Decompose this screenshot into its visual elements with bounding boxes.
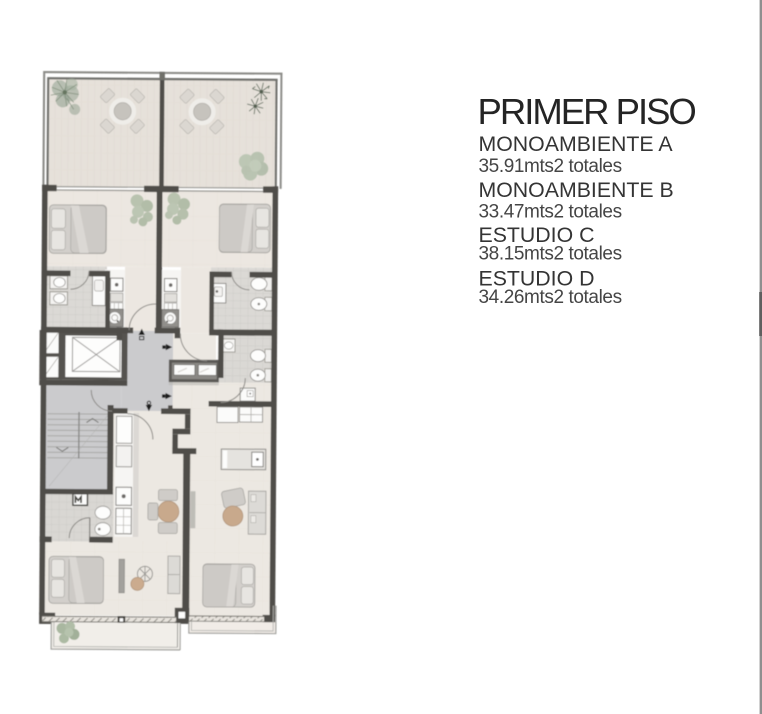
svg-text:38.15mts2 totales: 38.15mts2 totales: [479, 243, 622, 264]
svg-text:MONOAMBIENTE A: MONOAMBIENTE A: [479, 132, 674, 156]
svg-text:34.26mts2 totales: 34.26mts2 totales: [479, 287, 622, 308]
svg-text:33.47mts2 totales: 33.47mts2 totales: [479, 201, 622, 222]
svg-text:MONOAMBIENTE B: MONOAMBIENTE B: [479, 178, 674, 202]
svg-text:35.91mts2 totales: 35.91mts2 totales: [479, 156, 622, 177]
svg-text:PRIMER PISO: PRIMER PISO: [478, 91, 696, 132]
